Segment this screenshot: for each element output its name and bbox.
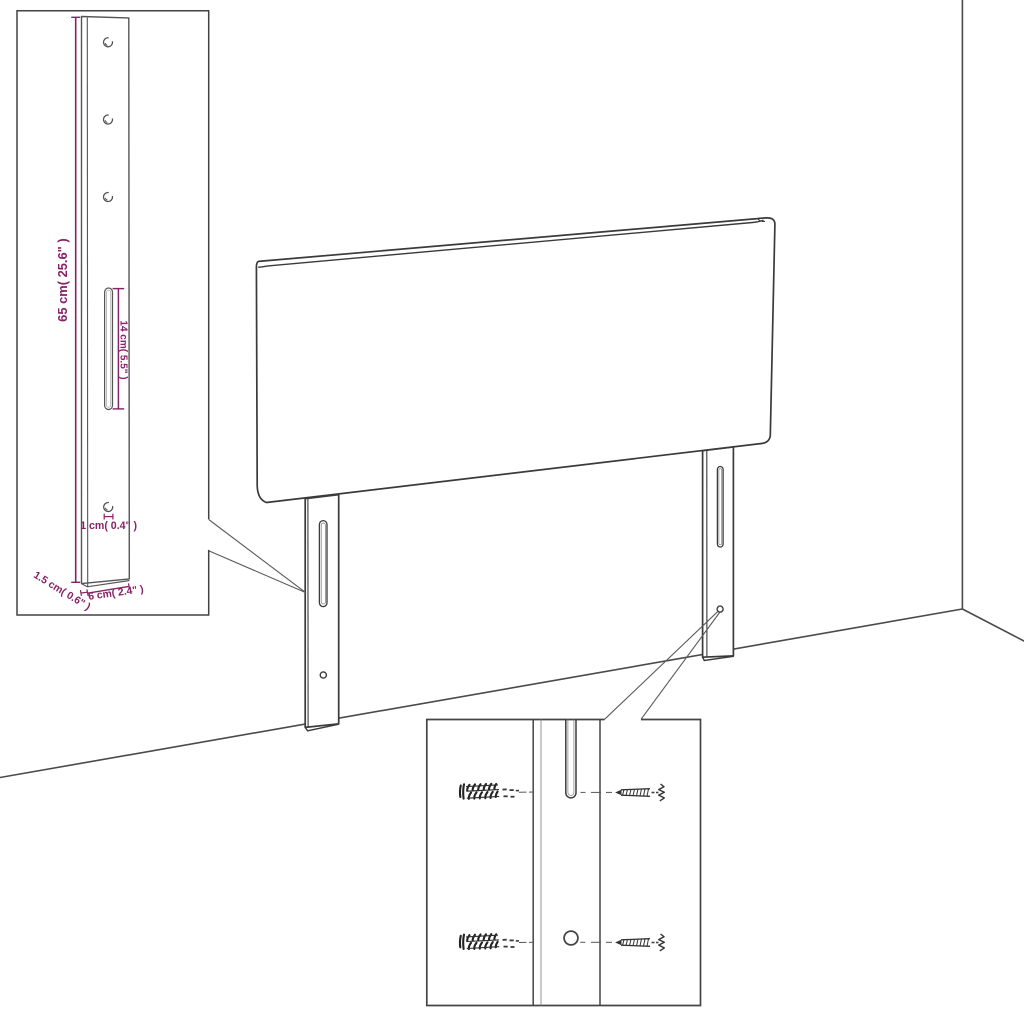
svg-text:1 cm( 0.4" ): 1 cm( 0.4" ) bbox=[80, 520, 137, 532]
svg-text:65 cm( 25.6" ): 65 cm( 25.6" ) bbox=[55, 238, 70, 322]
svg-text:14 cm( 5.5" ): 14 cm( 5.5" ) bbox=[118, 320, 129, 379]
